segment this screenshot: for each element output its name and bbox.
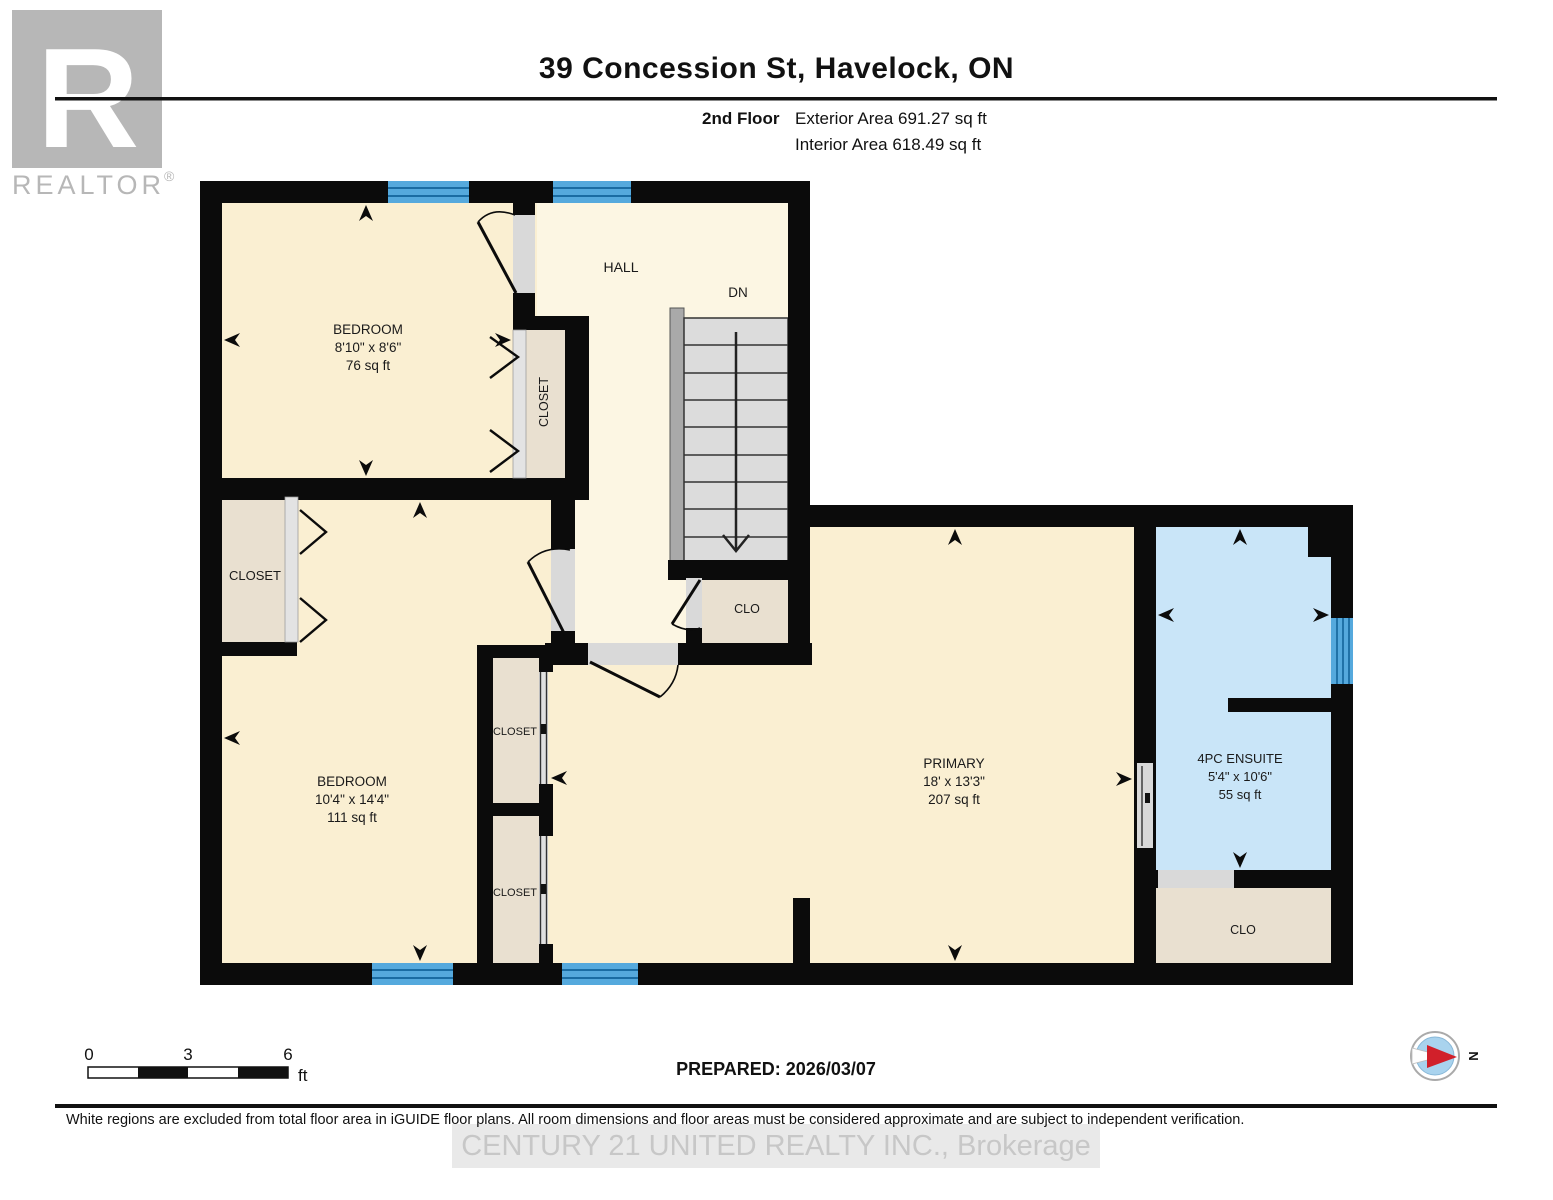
- stair-railing: [670, 308, 684, 562]
- bedroom1-closet-opening: [513, 330, 526, 478]
- bedroom2-area: 111 sq ft: [327, 810, 377, 825]
- primary-door-opening: [588, 643, 678, 665]
- interior-area: Interior Area 618.49 sq ft: [795, 135, 981, 155]
- floor-plan-canvas: R REALTOR ®: [0, 0, 1553, 1200]
- primary-name: PRIMARY: [923, 756, 984, 771]
- bedroom1-dims: 8'10" x 8'6": [335, 340, 402, 355]
- ensuite-closet-opening: [1158, 870, 1234, 888]
- closet-mid-upper-name: CLOSET: [493, 726, 537, 738]
- window-bedroom2-bottom: [372, 963, 453, 985]
- room-fills: [217, 195, 1335, 968]
- scale-bar: 0 3 6 ft: [84, 1045, 307, 1085]
- exterior-area: Exterior Area 691.27 sq ft: [795, 109, 987, 129]
- closet-bedroom1-name: CLOSET: [537, 377, 551, 427]
- realtor-logo-text: REALTOR: [12, 170, 165, 200]
- ensuite-sliding-door: [1137, 763, 1153, 848]
- ensuite-dims: 5'4" x 10'6": [1208, 769, 1272, 784]
- compass-icon: N: [1411, 1032, 1481, 1080]
- bedroom2-dims: 10'4" x 14'4": [315, 792, 389, 807]
- window-bedroom1-top: [388, 181, 469, 203]
- header-rule: [55, 97, 1497, 101]
- realtor-logo-icon: R REALTOR ®: [12, 10, 175, 200]
- bedroom2-name: BEDROOM: [317, 774, 387, 789]
- closet-sliding-door-upper: [539, 672, 548, 784]
- closet-hall-name: CLO: [734, 602, 760, 616]
- page-title: 39 Concession St, Havelock, ON: [0, 52, 1553, 86]
- closet-ensuite-name: CLO: [1230, 923, 1256, 937]
- brokerage-watermark: CENTURY 21 UNITED REALTY INC., Brokerage: [452, 1124, 1100, 1168]
- bedroom2-closet-opening: [285, 497, 298, 642]
- registered-mark: ®: [164, 168, 175, 184]
- ensuite-area: 55 sq ft: [1219, 787, 1262, 802]
- window-hall-top: [553, 181, 631, 203]
- ensuite-name: 4PC ENSUITE: [1197, 751, 1283, 766]
- hall-closet-door-opening: [686, 578, 702, 628]
- bedroom2-door-opening: [551, 549, 575, 631]
- bedroom1-name: BEDROOM: [333, 322, 403, 337]
- scale-tick-3: 3: [183, 1045, 192, 1064]
- closet-mid-lower-name: CLOSET: [493, 887, 537, 899]
- primary-dims: 18' x 13'3": [923, 774, 985, 789]
- footer-rule: [55, 1104, 1497, 1108]
- floor-label: 2nd Floor: [702, 109, 779, 129]
- window-primary-bottom: [562, 963, 638, 985]
- scale-unit: ft: [298, 1066, 308, 1085]
- stairs: [670, 308, 788, 564]
- scale-tick-0: 0: [84, 1045, 93, 1064]
- closet-sliding-door-lower: [539, 836, 548, 944]
- bedroom1-area: 76 sq ft: [346, 358, 391, 373]
- window-ensuite-right: [1331, 618, 1353, 684]
- closet-bedroom2-name: CLOSET: [229, 568, 281, 583]
- stairs-dn-label: DN: [728, 285, 748, 300]
- hall-name: HALL: [603, 259, 638, 275]
- prepared-date: PREPARED: 2026/03/07: [400, 1059, 1152, 1080]
- scale-tick-6: 6: [283, 1045, 292, 1064]
- compass-north-label: N: [1466, 1051, 1481, 1060]
- floor-plan-page: R REALTOR ®: [0, 0, 1553, 1200]
- footer-disclaimer: White regions are excluded from total fl…: [66, 1112, 1486, 1128]
- bedroom1-door-opening: [513, 215, 535, 293]
- primary-area: 207 sq ft: [928, 792, 980, 807]
